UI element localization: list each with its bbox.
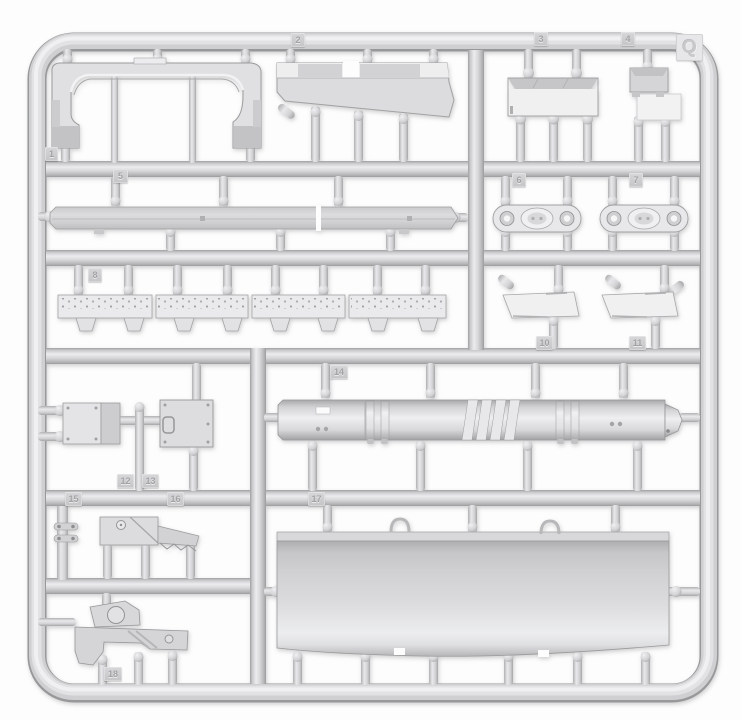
sprue-letter-tag: Q <box>676 34 703 61</box>
part-14-gun-barrel <box>278 400 682 444</box>
part-number-tag-16: 16 <box>167 492 184 506</box>
part-8-riveted-strips <box>58 295 446 331</box>
part-number-tag-3: 3 <box>534 32 548 46</box>
part-number-tag-18: 18 <box>104 667 122 681</box>
part-number-tag-12: 12 <box>117 474 134 488</box>
part-number-tag-5: 5 <box>113 169 128 183</box>
part-number-tag-17: 17 <box>308 492 325 506</box>
part-number-tag-2: 2 <box>291 33 305 47</box>
part-4-small-box-and-plate <box>630 68 681 120</box>
part-number-tag-15: 15 <box>65 492 82 506</box>
part-11-mud-flap <box>602 292 678 318</box>
part-7-suspension-rocker <box>600 205 688 232</box>
part-12-hatch-plate <box>63 403 120 444</box>
part-number-tag-8: 8 <box>88 268 102 282</box>
sprue-photo <box>0 0 741 720</box>
part-17-curved-hull-panel <box>277 519 669 657</box>
part-number-tag-11: 11 <box>629 336 646 350</box>
part-number-tag-13: 13 <box>142 474 159 488</box>
part-number-tag-10: 10 <box>536 336 553 350</box>
photo-canvas: 1 2 3 4 5 6 7 8 10 11 12 13 14 15 16 17 … <box>0 0 741 720</box>
part-3-stowage-box <box>508 78 598 116</box>
part-1-fender-arch <box>52 58 261 148</box>
part-5-long-beam <box>50 205 458 234</box>
part-number-tag-4: 4 <box>621 32 635 46</box>
part-10-mud-flap <box>503 292 579 318</box>
part-2-fender-plate <box>277 61 454 117</box>
part-number-tag-7: 7 <box>629 173 643 187</box>
part-6-suspension-rocker <box>493 205 581 232</box>
part-number-tag-1: 1 <box>45 147 58 161</box>
part-number-tag-14: 14 <box>330 365 348 379</box>
part-13-access-panel <box>160 400 213 447</box>
part-number-tag-6: 6 <box>512 173 526 187</box>
